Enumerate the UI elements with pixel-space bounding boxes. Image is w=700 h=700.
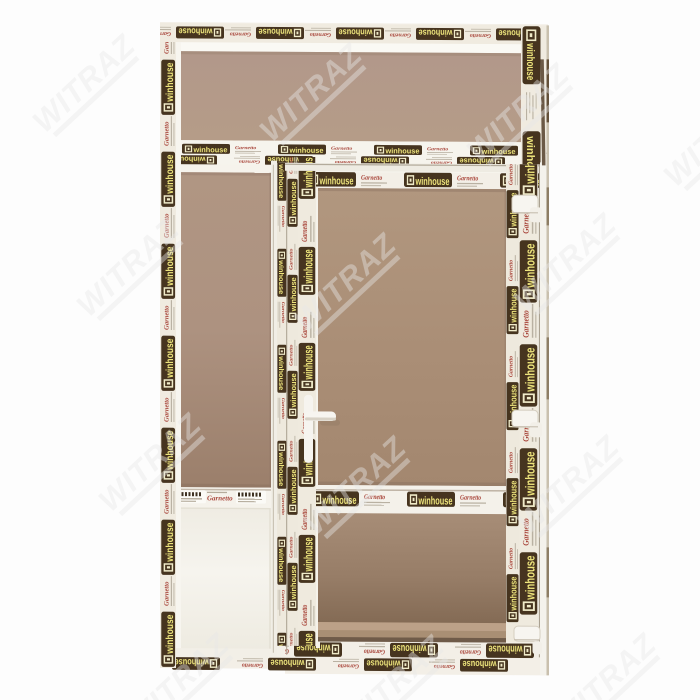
- svg-text:Garnetto: Garnetto: [207, 494, 233, 502]
- svg-text:winho: winho: [524, 135, 536, 168]
